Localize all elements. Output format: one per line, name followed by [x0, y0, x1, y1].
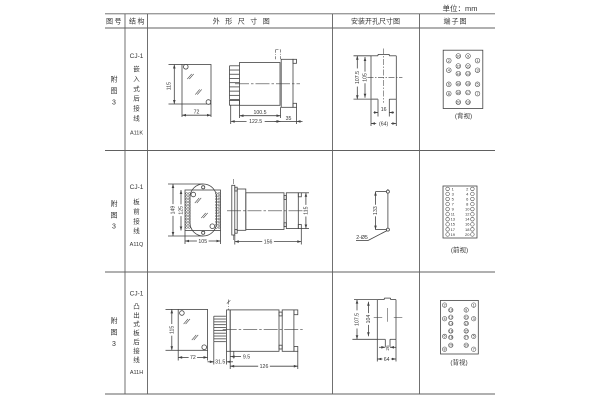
svg-text:6: 6: [448, 83, 450, 87]
svg-text:A11H: A11H: [130, 370, 143, 376]
svg-text:16: 16: [449, 329, 453, 333]
svg-text:20: 20: [449, 344, 453, 348]
svg-text:线: 线: [133, 226, 140, 235]
svg-text:(背视): (背视): [455, 111, 472, 120]
svg-text:1: 1: [473, 303, 475, 307]
svg-text:18: 18: [449, 336, 453, 340]
svg-text:线: 线: [133, 114, 140, 123]
svg-text:2: 2: [448, 59, 450, 63]
svg-text:凸: 凸: [133, 302, 140, 310]
svg-text:前: 前: [133, 207, 140, 216]
svg-text:5: 5: [473, 335, 475, 339]
svg-text:105: 105: [198, 239, 207, 245]
svg-text:20: 20: [465, 232, 470, 237]
svg-text:15: 15: [464, 329, 468, 333]
svg-text:17: 17: [466, 91, 470, 95]
svg-text:板: 板: [133, 328, 140, 337]
svg-text:接: 接: [133, 216, 140, 225]
svg-text:20: 20: [456, 101, 460, 105]
svg-text:端子图: 端子图: [444, 17, 468, 26]
svg-text:13: 13: [466, 72, 470, 76]
svg-text:14: 14: [449, 322, 453, 326]
svg-text:14: 14: [456, 72, 460, 76]
svg-text:10: 10: [449, 308, 453, 312]
svg-text:4: 4: [444, 317, 446, 321]
svg-text:外形尺寸图: 外形尺寸图: [213, 17, 276, 26]
svg-text:107.5: 107.5: [355, 313, 361, 326]
svg-text:3: 3: [112, 341, 116, 348]
svg-text:单位：mm: 单位：mm: [443, 3, 478, 13]
svg-text:式: 式: [133, 84, 140, 93]
svg-text:26: 26: [385, 345, 391, 351]
svg-text:12: 12: [449, 316, 453, 320]
svg-text:9: 9: [467, 54, 469, 58]
svg-text:149: 149: [171, 206, 177, 215]
svg-text:156: 156: [264, 239, 273, 245]
svg-text:A11Q: A11Q: [130, 242, 144, 248]
svg-text:104: 104: [366, 315, 372, 324]
svg-text:72: 72: [194, 110, 200, 116]
svg-text:图: 图: [111, 329, 118, 337]
svg-text:后: 后: [133, 337, 140, 346]
svg-text:19: 19: [464, 344, 468, 348]
svg-text:板: 板: [133, 197, 140, 206]
svg-text:(前视): (前视): [451, 245, 468, 254]
svg-text:8: 8: [448, 92, 450, 96]
svg-text:105: 105: [363, 73, 369, 82]
svg-text:附: 附: [111, 199, 118, 208]
svg-text:5: 5: [476, 83, 478, 87]
svg-text:CJ-1: CJ-1: [130, 184, 144, 191]
svg-text:9: 9: [465, 308, 467, 312]
svg-text:13: 13: [464, 322, 468, 326]
svg-text:115: 115: [169, 326, 175, 334]
svg-text:附: 附: [111, 75, 118, 84]
svg-text:115: 115: [167, 82, 173, 90]
svg-text:3: 3: [112, 100, 116, 107]
svg-text:16: 16: [381, 107, 387, 113]
svg-text:19: 19: [451, 232, 456, 237]
svg-text:安装开孔尺寸图: 安装开孔尺寸图: [351, 17, 400, 26]
svg-text:72: 72: [190, 355, 196, 361]
svg-text:126: 126: [260, 364, 269, 370]
svg-text:107.5: 107.5: [355, 71, 361, 84]
svg-text:线: 线: [133, 355, 140, 364]
svg-text:(64): (64): [379, 121, 388, 127]
svg-text:10: 10: [456, 54, 460, 58]
svg-text:CJ-1: CJ-1: [130, 291, 144, 298]
svg-text:出: 出: [133, 310, 140, 319]
svg-text:接: 接: [133, 104, 140, 113]
svg-text:A11K: A11K: [130, 130, 143, 136]
svg-text:11: 11: [464, 316, 468, 320]
svg-text:(背视): (背视): [450, 358, 467, 367]
svg-text:125: 125: [179, 206, 185, 215]
svg-text:12: 12: [456, 64, 460, 68]
svg-text:结构: 结构: [129, 17, 146, 26]
svg-text:35: 35: [286, 116, 292, 122]
svg-text:CJ-1: CJ-1: [130, 53, 144, 60]
svg-text:11: 11: [466, 64, 470, 68]
svg-text:图: 图: [111, 212, 118, 220]
svg-text:后: 后: [133, 94, 140, 103]
svg-text:嵌: 嵌: [133, 65, 140, 73]
svg-text:7: 7: [473, 348, 475, 352]
svg-text:1: 1: [476, 59, 478, 63]
svg-text:17: 17: [464, 336, 468, 340]
svg-text:7: 7: [476, 92, 478, 96]
svg-text:4: 4: [448, 69, 450, 73]
svg-text:6: 6: [444, 335, 446, 339]
svg-text:8: 8: [444, 348, 446, 352]
svg-text:接: 接: [133, 346, 140, 355]
svg-text:3: 3: [476, 69, 478, 73]
svg-text:133: 133: [373, 206, 379, 215]
svg-text:19: 19: [466, 101, 470, 105]
svg-text:18: 18: [456, 91, 460, 95]
svg-text:2: 2: [444, 303, 446, 307]
svg-text:9.5: 9.5: [243, 355, 250, 361]
svg-text:122.5: 122.5: [249, 119, 262, 125]
svg-text:16: 16: [456, 82, 460, 86]
svg-text:31.5: 31.5: [215, 360, 225, 366]
svg-text:15: 15: [466, 82, 470, 86]
svg-text:图号: 图号: [106, 18, 123, 26]
svg-text:115: 115: [303, 206, 309, 214]
svg-text:64: 64: [384, 357, 390, 363]
svg-text:式: 式: [133, 319, 140, 328]
svg-text:3: 3: [473, 317, 475, 321]
svg-text:附: 附: [111, 316, 118, 325]
svg-text:3: 3: [112, 224, 116, 231]
svg-text:入: 入: [133, 76, 140, 83]
svg-text:图: 图: [111, 87, 118, 95]
svg-text:100.5: 100.5: [254, 110, 267, 116]
